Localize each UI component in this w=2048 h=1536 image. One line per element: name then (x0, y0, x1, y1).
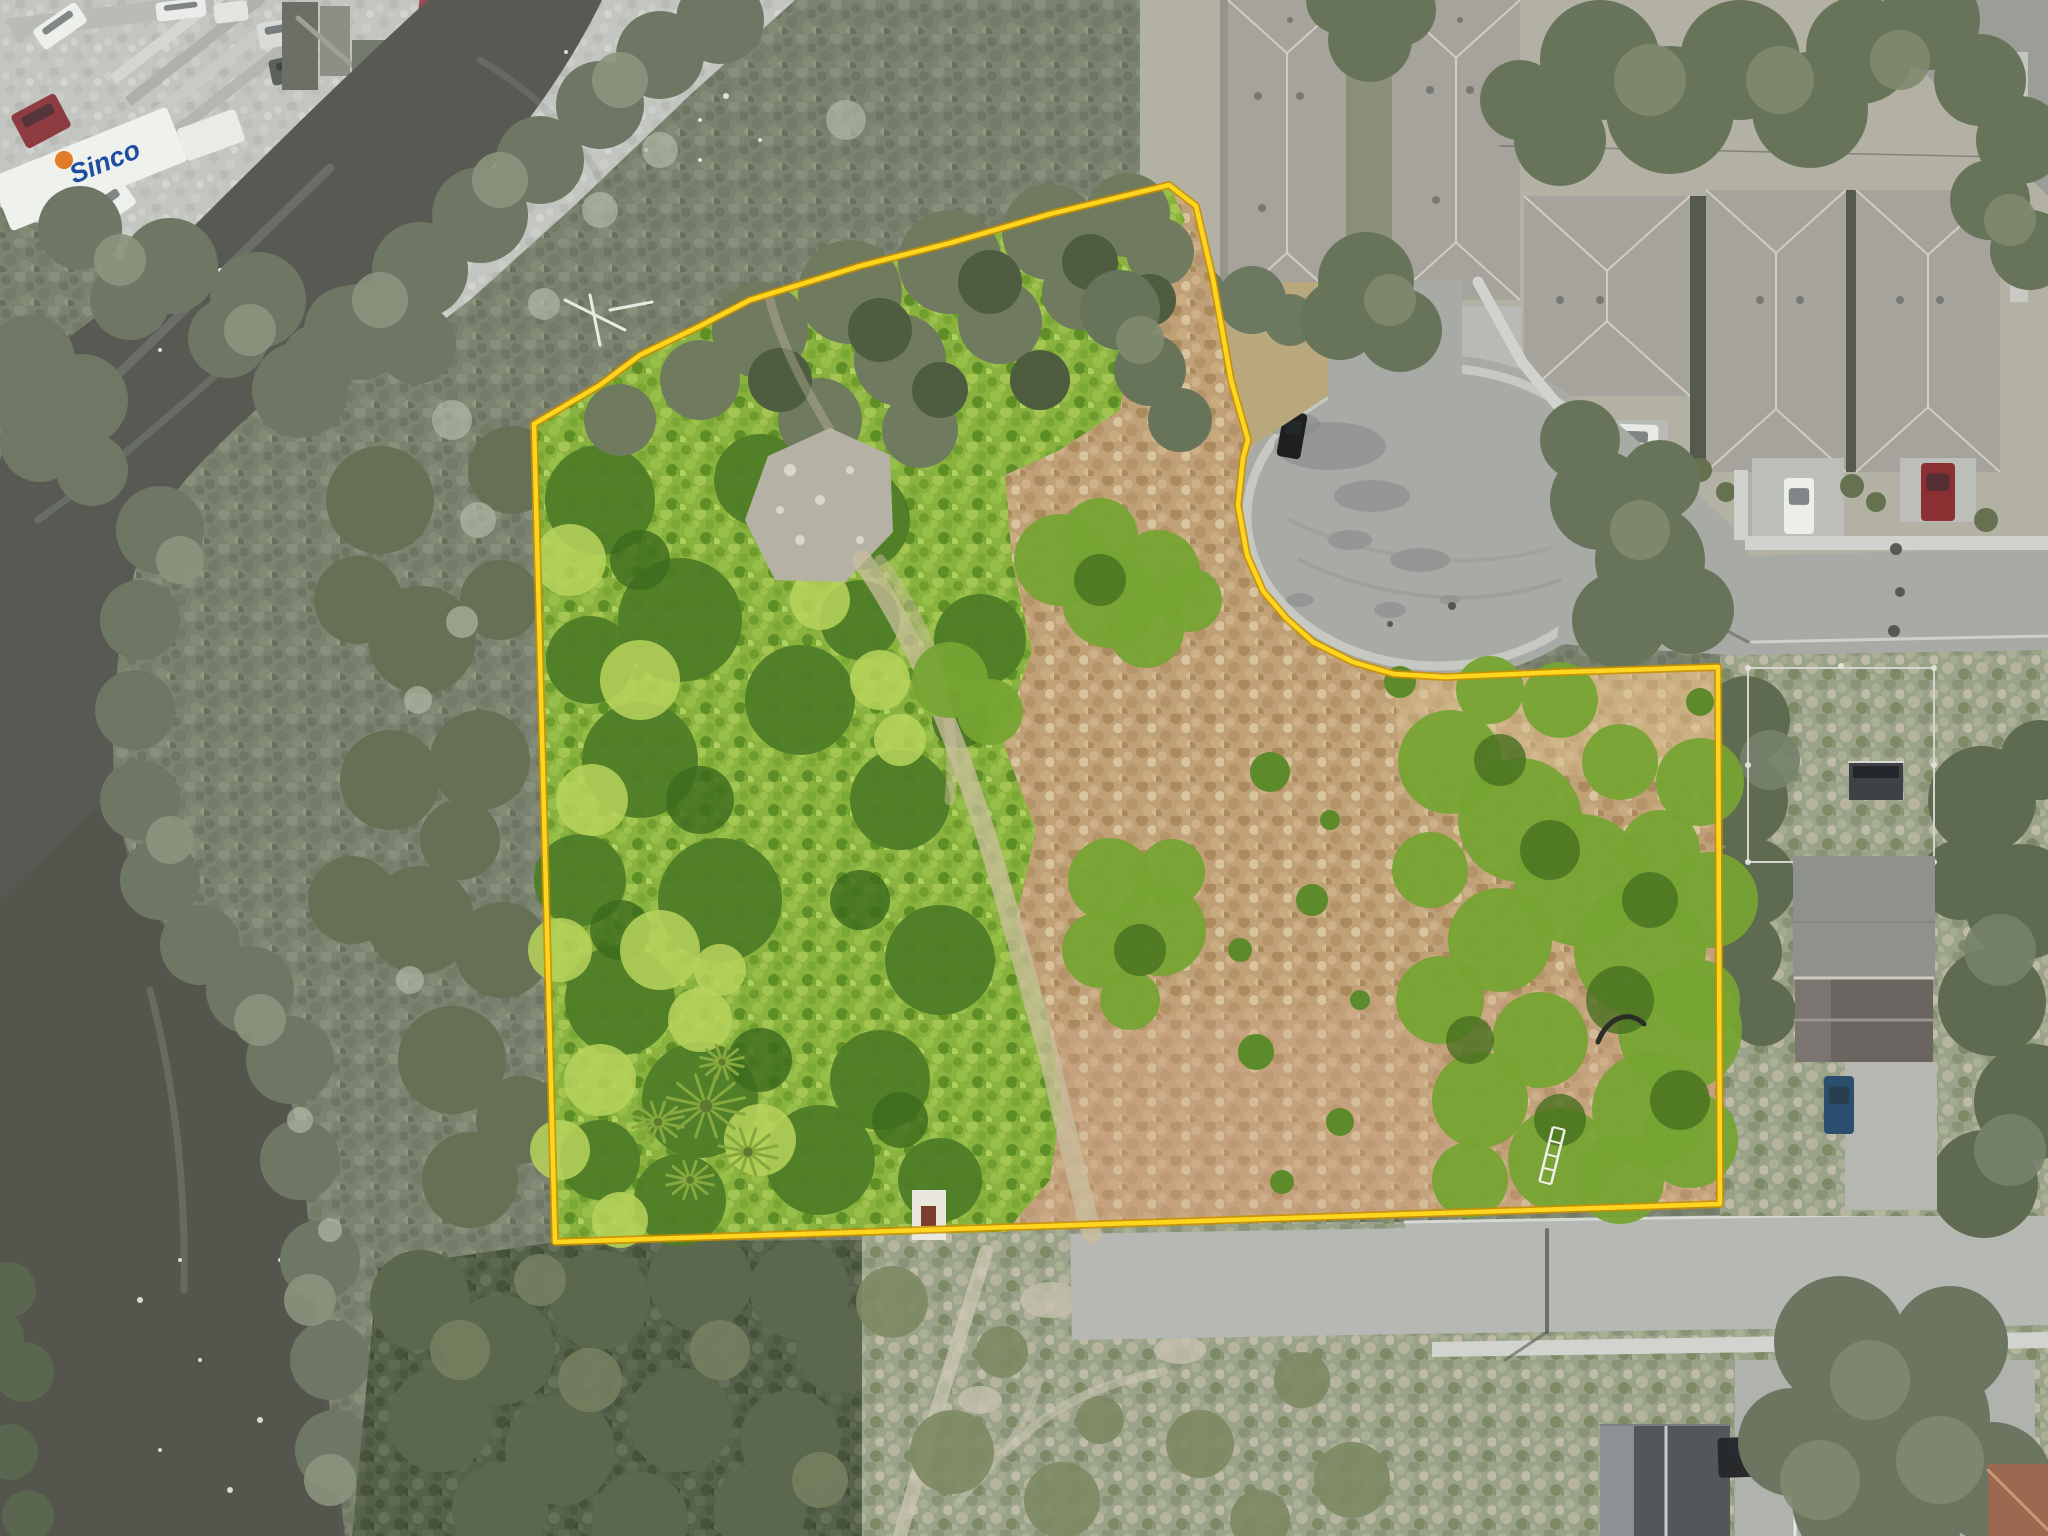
water-sparkles (158, 1448, 162, 1452)
scrub-bushes (910, 1410, 994, 1494)
scattered-bushes (1326, 1108, 1354, 1136)
water-sparkles (137, 1297, 143, 1303)
bleached-snags (396, 966, 424, 994)
forest-band (340, 730, 440, 830)
riverbank-trees-light (156, 536, 204, 584)
riverbank-trees-light (224, 304, 276, 356)
riverbank-trees (95, 670, 175, 750)
roof-vents (1466, 86, 1474, 94)
yard-trees-light (1964, 914, 2036, 986)
green-zone-highlights (600, 640, 680, 720)
roof-vents (1556, 296, 1564, 304)
overhang-canopies-light (1364, 274, 1416, 326)
bleached-snags (642, 132, 678, 168)
overhang-canopies-light (1984, 194, 2036, 246)
overhang-canopies-light (1610, 500, 1670, 560)
water-sparkles (257, 1417, 263, 1423)
overhang-canopies-light (1116, 316, 1164, 364)
sand-patches (1154, 1336, 1206, 1364)
forest-south-trees (550, 1250, 650, 1350)
rock-speckles (776, 506, 784, 514)
bleached-snags (404, 686, 432, 714)
scattered-bushes (1296, 884, 1328, 916)
rock-speckles (856, 536, 864, 544)
parcel-trees-center (1158, 568, 1222, 632)
roof-vents (1796, 296, 1804, 304)
white-suv-windshield (1789, 488, 1809, 505)
forest-south-trees (648, 1228, 752, 1332)
overhang-canopies (1480, 60, 1560, 140)
riverbank-trees-light (352, 272, 408, 328)
shoreline-canopy-dark (848, 298, 912, 362)
green-zone-highlights (850, 650, 910, 710)
shoreline-canopy-dark (1010, 350, 1070, 410)
palm-tree-crown (718, 1058, 725, 1065)
manholes (1890, 543, 1902, 555)
green-zone-trees (745, 645, 855, 755)
rock-speckles (815, 495, 825, 505)
scrub-bushes (1166, 1410, 1234, 1478)
scrub-bushes (1274, 1352, 1330, 1408)
scrub-bushes (1024, 1462, 1100, 1536)
equipment (282, 2, 318, 90)
parcel-trees-shade (1520, 820, 1580, 880)
parcel-trees-shade (1534, 1094, 1586, 1146)
green-zone-shade (610, 530, 670, 590)
bleached-snags (287, 1107, 313, 1133)
forest-band (314, 556, 402, 644)
parcel-trees-east (1448, 888, 1552, 992)
scattered-bushes (1250, 752, 1290, 792)
manholes (1895, 587, 1905, 597)
water-sparkles (198, 1358, 202, 1362)
parcel-trees-east (1660, 960, 1740, 1040)
foundation-bushes (1840, 474, 1864, 498)
bleached-snags (826, 100, 866, 140)
large-tree-southeast-light (1896, 1416, 1984, 1504)
red-car (1921, 463, 1955, 521)
green-zone-shade (666, 766, 734, 834)
fence-posts (1745, 762, 1751, 768)
green-zone-shade (872, 1092, 928, 1148)
scattered-bushes (1320, 810, 1340, 830)
scattered-bushes (1350, 990, 1370, 1010)
green-zone-highlights (564, 1044, 636, 1116)
bleached-snags (582, 192, 618, 228)
palm-tree-crown (700, 1100, 713, 1113)
parcel-trees-shade (1650, 1070, 1710, 1130)
rock-speckles (784, 464, 796, 476)
manholes (1387, 621, 1393, 627)
roof-vents (1287, 17, 1293, 23)
water-sparkles (723, 93, 729, 99)
roof-vents (1296, 92, 1304, 100)
green-zone-trees (885, 905, 995, 1015)
water-sparkles (698, 158, 702, 162)
parcel-trees-shade (1074, 554, 1126, 606)
water-sparkles (227, 1487, 233, 1493)
scene-root: Sinco (0, 0, 2048, 1536)
roof-vents (1596, 296, 1604, 304)
roof-vents (1426, 86, 1434, 94)
scrub-bushes (1314, 1442, 1390, 1518)
green-zone-highlights (534, 524, 606, 596)
water-sparkles (758, 138, 762, 142)
palm-tree-crown (686, 1176, 694, 1184)
blue-car-windshield (1829, 1086, 1849, 1103)
forest-south-trees (628, 1368, 732, 1472)
forest-south-trees-light (792, 1452, 848, 1508)
shoreline-canopy-dark (912, 362, 968, 418)
roof-vents (1756, 296, 1764, 304)
parcel-trees-center (1100, 970, 1160, 1030)
blue-car (1824, 1076, 1854, 1134)
riverbank-trees-light (234, 994, 286, 1046)
rock-speckles (795, 535, 805, 545)
white-suv (1784, 478, 1814, 534)
large-tree-southeast-light (1830, 1340, 1910, 1420)
scrub-bushes (856, 1266, 928, 1338)
fence-posts (1745, 665, 1751, 671)
palm-tree-crown (743, 1147, 753, 1157)
green-zone-highlights (694, 944, 746, 996)
riverbank-trees (100, 580, 180, 660)
dark-roof-light-strip (1600, 1425, 1634, 1536)
forest-band (326, 446, 434, 554)
fence-posts (1931, 665, 1937, 671)
driveway-east (1845, 1062, 1937, 1210)
street-stub (1070, 1228, 1408, 1340)
scattered-bushes (1686, 688, 1714, 716)
shed-panel (1853, 766, 1899, 778)
parcel-trees-east (1432, 1142, 1508, 1218)
water-sparkles (564, 50, 568, 54)
palm-tree-crown (654, 1118, 662, 1126)
bleached-snags (432, 400, 472, 440)
forest-band (420, 800, 500, 880)
overhang-canopies-light (1746, 46, 1814, 114)
roof-vents (1896, 296, 1904, 304)
foundation-bushes (1716, 482, 1736, 502)
mangrove-island (56, 434, 128, 506)
water-sparkles (158, 348, 162, 352)
water-sparkles (698, 118, 702, 122)
building-seam (1690, 196, 1706, 472)
forest-band (430, 710, 530, 810)
scattered-bushes (1270, 1170, 1294, 1194)
green-zone-highlights (874, 714, 926, 766)
fence-posts (1838, 663, 1844, 669)
roof-vents (1432, 196, 1440, 204)
pavement-stains (1334, 480, 1410, 512)
parcel-trees-east (1456, 656, 1524, 724)
pavement-stains (1374, 602, 1406, 618)
parcel-trees-center (957, 679, 1023, 745)
scrub-bushes (1076, 1396, 1124, 1444)
green-zone-shade (830, 870, 890, 930)
overhang-canopies (1148, 388, 1212, 452)
riverbank-trees-light (472, 152, 528, 208)
aerial-photo: Sinco (0, 0, 2048, 1536)
foundation-bushes (1866, 492, 1886, 512)
pavement-stains (1286, 593, 1314, 607)
shoreline-canopy (660, 340, 740, 420)
overhang-canopies (1540, 400, 1620, 480)
bleached-snags (318, 1218, 342, 1242)
foundation-bushes (1974, 508, 1998, 532)
sand-patches (1020, 1282, 1080, 1318)
overhang-canopies-light (1614, 44, 1686, 116)
green-zone-trees (634, 1154, 726, 1246)
rock-speckles (846, 466, 854, 474)
forest-south-trees (388, 1368, 492, 1472)
riverbank-trees-light (146, 816, 194, 864)
parcel-trees-shade (1622, 872, 1678, 928)
green-zone-highlights (556, 764, 628, 836)
manholes (1448, 602, 1456, 610)
bleached-snags (528, 288, 560, 320)
bleached-snags (460, 502, 496, 538)
riverbank-trees (290, 1320, 370, 1400)
pad-marker (921, 1206, 936, 1226)
walkway-to-road (1734, 470, 1748, 540)
green-zone-highlights (620, 910, 700, 990)
roof-vents (1457, 17, 1463, 23)
green-zone-highlights (668, 988, 732, 1052)
roof-vents (1258, 204, 1266, 212)
red-car-windshield (1926, 473, 1949, 490)
roof-vents (1936, 296, 1944, 304)
roof-vents (1254, 92, 1262, 100)
fence-posts (1745, 859, 1751, 865)
riverbank-trees-light (304, 1454, 356, 1506)
forest-south-trees-light (558, 1348, 622, 1412)
overhang-canopies (1646, 566, 1734, 654)
shoreline-canopy-dark (958, 250, 1022, 314)
forest-south-trees-light (690, 1320, 750, 1380)
yard-trees-light (1974, 1114, 2046, 1186)
green-zone-highlights (528, 918, 592, 982)
forest-band (308, 856, 396, 944)
overhang-canopies-light (1870, 30, 1930, 90)
riverbank-trees-light (592, 52, 648, 108)
sand-patches (958, 1386, 1002, 1414)
parcel-trees-center (1139, 839, 1205, 905)
forest-south-trees-light (514, 1254, 566, 1306)
aerial-scene: Sinco (0, 0, 2048, 1536)
riverbank-trees-light (284, 1274, 336, 1326)
parcel-trees-east (1392, 832, 1468, 908)
truck-cab (213, 0, 249, 24)
scattered-bushes (1238, 1034, 1274, 1070)
forest-south-trees-light (430, 1320, 490, 1380)
parcel-trees-shade (1446, 1016, 1494, 1064)
water-sparkles (178, 1258, 182, 1262)
riverbank-trees-light (94, 234, 146, 286)
bleached-snags (446, 606, 478, 638)
shoreline-canopy (584, 384, 656, 456)
parcel-trees-east (1582, 724, 1658, 800)
parcel-trees-east (1492, 992, 1588, 1088)
building-seam (1846, 190, 1856, 472)
green-zone-highlights (530, 1120, 590, 1180)
fence-posts (1931, 762, 1937, 768)
scattered-bushes (1228, 938, 1252, 962)
scrub-bushes (976, 1326, 1028, 1378)
parcel-trees-shade (1114, 924, 1166, 976)
manholes (1888, 625, 1900, 637)
parcel-trees-shade (1474, 734, 1526, 786)
large-tree-southeast-light (1780, 1440, 1860, 1520)
